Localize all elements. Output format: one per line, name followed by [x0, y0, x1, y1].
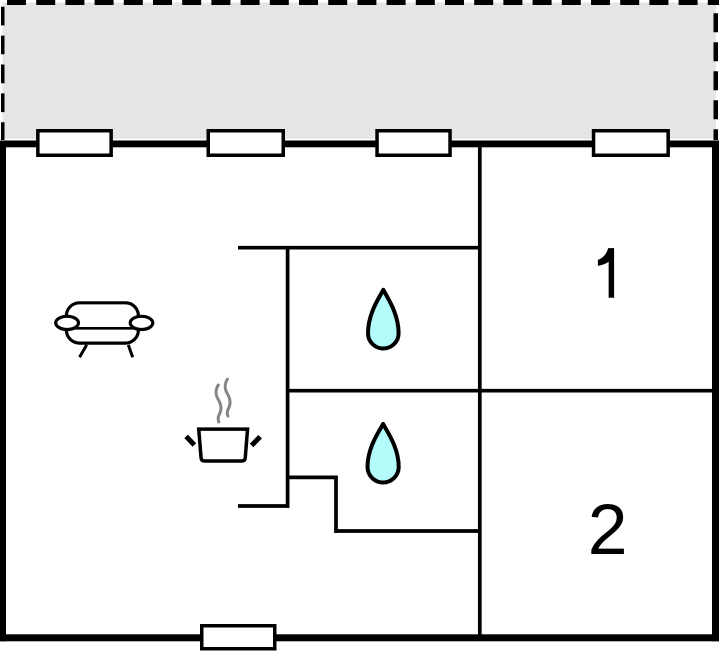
- svg-text:2: 2: [588, 490, 628, 570]
